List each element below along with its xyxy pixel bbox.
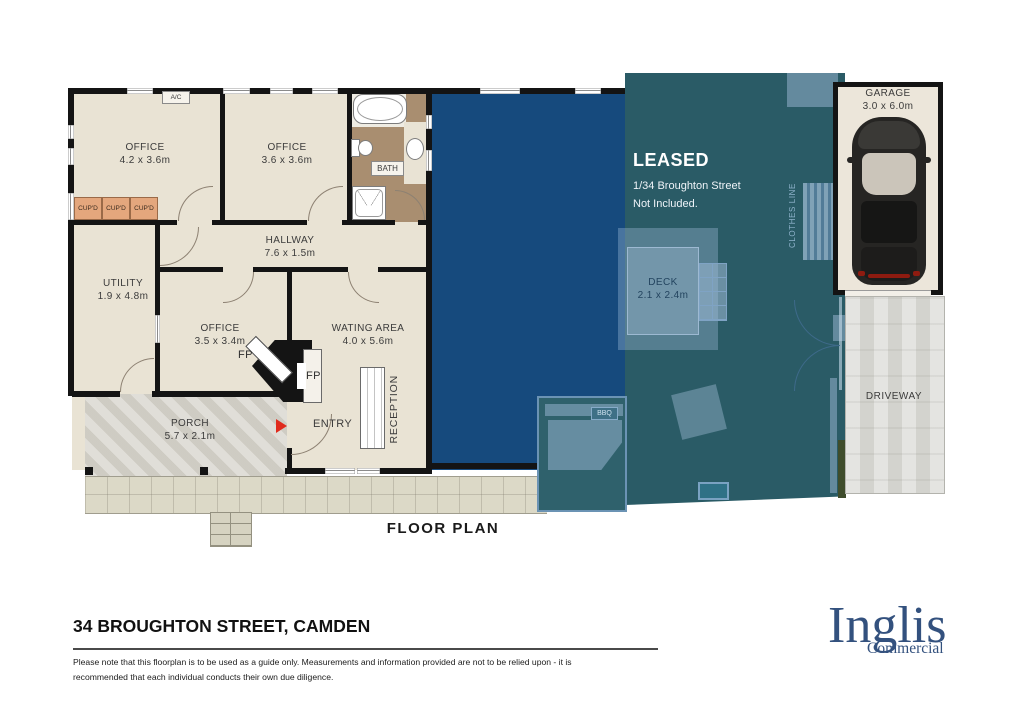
- wall: [253, 267, 348, 272]
- footer-divider: [73, 648, 658, 650]
- window: [68, 148, 74, 165]
- disclaimer-line2: recommended that each individual conduct…: [73, 672, 333, 682]
- window: [480, 88, 520, 94]
- car-tail-light-left: [858, 271, 865, 276]
- room-name: HALLWAY: [240, 234, 340, 247]
- room-name: UTILITY: [73, 277, 173, 290]
- window: [127, 88, 153, 94]
- room-dims: 7.6 x 1.5m: [240, 247, 340, 260]
- cupboard-3: CUP'D: [130, 197, 158, 220]
- front-steps: [210, 512, 252, 547]
- wall: [212, 220, 307, 225]
- entry-arrow-icon: [276, 419, 287, 433]
- utility-label: UTILITY 1.9 x 4.8m: [73, 277, 173, 303]
- window: [270, 88, 293, 94]
- wall: [378, 267, 426, 272]
- bbq: BBQ: [591, 407, 618, 420]
- wall: [287, 270, 292, 343]
- cupboard-label: CUP'D: [134, 205, 154, 212]
- wall: [155, 343, 160, 392]
- cupboard-label: CUP'D: [106, 205, 126, 212]
- deck-label: DECK 2.1 x 2.4m: [613, 276, 713, 302]
- office3-label: OFFICE 3.5 x 3.4m: [170, 322, 270, 348]
- wall: [72, 220, 177, 225]
- office2-label: OFFICE 3.6 x 3.6m: [237, 141, 337, 167]
- window: [357, 468, 380, 474]
- fireplace-hearth-inner: [297, 363, 306, 389]
- window: [155, 315, 160, 343]
- room-dims: 4.0 x 5.6m: [318, 335, 418, 348]
- bath-label: BATH: [377, 164, 398, 173]
- room-dims: 3.0 x 6.0m: [838, 100, 938, 113]
- window: [575, 88, 601, 94]
- disclaimer-line1: Please note that this floorplan is to be…: [73, 657, 572, 667]
- address-title: 34 BROUGHTON STREET, CAMDEN: [73, 616, 370, 637]
- bathtub-basin: [357, 97, 403, 121]
- clothes-line-label: CLOTHES LINE: [786, 183, 799, 248]
- wall: [380, 468, 430, 474]
- car-mirror-left: [847, 157, 857, 163]
- room-dims: 3.6 x 3.6m: [237, 154, 337, 167]
- floor-plan-title: FLOOR PLAN: [348, 520, 538, 537]
- window: [312, 88, 338, 94]
- bath-label-box: BATH: [371, 161, 404, 176]
- room-dims: 4.2 x 3.6m: [95, 154, 195, 167]
- front-walkway: [85, 476, 547, 514]
- cupboard-label: CUP'D: [78, 205, 98, 212]
- room-name: OFFICE: [170, 322, 270, 335]
- room-name: OFFICE: [237, 141, 337, 154]
- window: [325, 468, 355, 474]
- toilet-bowl: [358, 140, 373, 156]
- room-name: DECK: [613, 276, 713, 289]
- ac-unit: A/C: [162, 91, 190, 104]
- room-name: WATING AREA: [318, 322, 418, 335]
- car-tail-light-bar: [868, 274, 910, 278]
- window: [426, 150, 432, 171]
- car-windshield: [862, 153, 916, 195]
- ac-label: A/C: [171, 94, 182, 101]
- room-dims: 1.9 x 4.8m: [73, 290, 173, 303]
- room-dims: 5.7 x 2.1m: [140, 430, 240, 443]
- car-tail-light-right: [913, 271, 920, 276]
- yard-gate-bottom: [698, 482, 729, 500]
- car-roof: [861, 201, 917, 243]
- leased-line2: Not Included.: [633, 198, 741, 210]
- wall: [220, 92, 225, 222]
- waiting-area-label: WATING AREA 4.0 x 5.6m: [318, 322, 418, 348]
- wall: [342, 220, 395, 225]
- basin: [406, 138, 424, 160]
- yard-structure: [787, 73, 838, 107]
- logo-subtext: Commercial: [867, 640, 1008, 658]
- wall: [285, 468, 325, 474]
- wall: [432, 463, 542, 469]
- leased-text-block: LEASED 1/34 Broughton Street Not Include…: [633, 150, 741, 210]
- room-dims: 3.5 x 3.4m: [170, 335, 270, 348]
- car-hood: [858, 121, 920, 149]
- cupboard-2: CUP'D: [102, 197, 130, 220]
- window: [68, 125, 74, 139]
- yard-fence-strip: [830, 378, 837, 493]
- driveway-label: DRIVEWAY: [844, 390, 944, 403]
- cupboard-1: CUP'D: [74, 197, 102, 220]
- room-name: GARAGE: [838, 87, 938, 100]
- wall: [72, 391, 120, 397]
- room-name: OFFICE: [95, 141, 195, 154]
- car-mirror-right: [921, 157, 931, 163]
- reception-desk: [360, 367, 385, 449]
- entry-label: ENTRY: [313, 418, 352, 431]
- garage-label: GARAGE 3.0 x 6.0m: [838, 87, 938, 113]
- porch-label: PORCH 5.7 x 2.1m: [140, 417, 240, 443]
- inglis-logo: Inglis Commercial: [828, 598, 1008, 658]
- wall: [152, 391, 292, 397]
- fp-label-1: FP: [238, 349, 253, 362]
- fp-label-2: FP: [306, 370, 321, 383]
- porch-post: [85, 467, 93, 475]
- room-name: PORCH: [140, 417, 240, 430]
- office1-label: OFFICE 4.2 x 3.6m: [95, 141, 195, 167]
- car: [852, 117, 926, 285]
- porch-post: [200, 467, 208, 475]
- floorplan-page: BATH A/C CUP'D CUP'D CUP'D FP FP RECEPTI…: [0, 0, 1024, 724]
- wall: [426, 88, 432, 474]
- reception-label: RECEPTION: [388, 375, 401, 443]
- bbq-label: BBQ: [597, 410, 612, 417]
- window: [223, 88, 250, 94]
- shower-tray: [355, 189, 383, 217]
- window: [426, 115, 432, 129]
- leased-title: LEASED: [633, 150, 741, 171]
- room-dims: 2.1 x 2.4m: [613, 289, 713, 302]
- leased-line1: 1/34 Broughton Street: [633, 180, 741, 192]
- hallway-label: HALLWAY 7.6 x 1.5m: [240, 234, 340, 260]
- wall: [155, 267, 223, 272]
